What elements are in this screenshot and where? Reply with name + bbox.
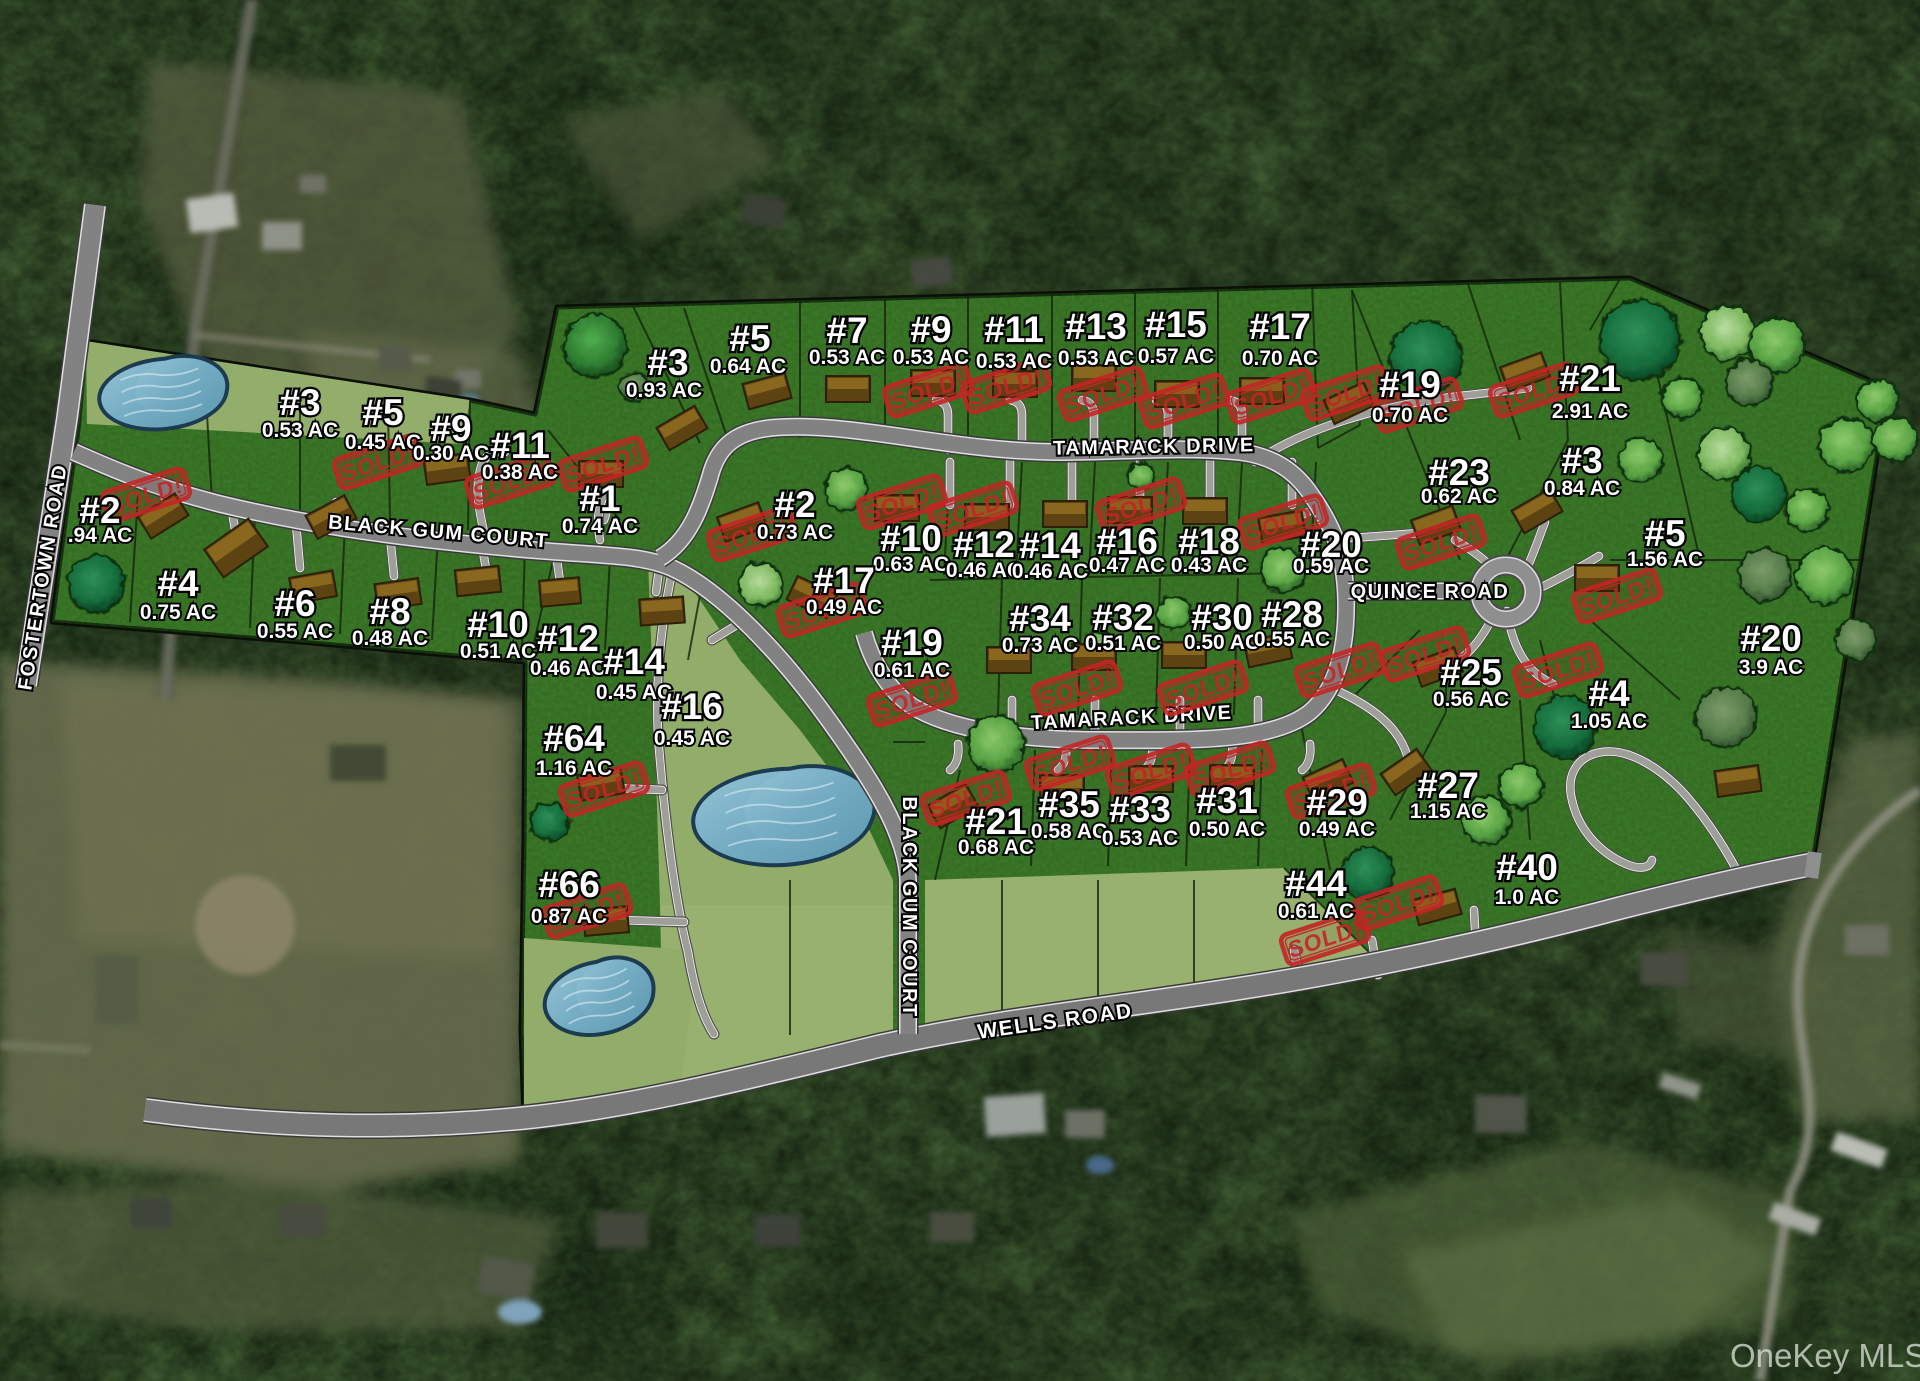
svg-text:0.50 AC: 0.50 AC	[1184, 631, 1260, 654]
svg-text:0.38 AC: 0.38 AC	[482, 461, 558, 484]
svg-text:#34: #34	[1009, 598, 1071, 639]
svg-text:0.43 AC: 0.43 AC	[1171, 554, 1247, 577]
svg-text:0.48 AC: 0.48 AC	[352, 627, 428, 650]
svg-text:.94 AC: .94 AC	[68, 524, 133, 547]
svg-text:#4: #4	[157, 563, 199, 604]
svg-text:#35: #35	[1038, 784, 1100, 825]
svg-text:0.63 AC: 0.63 AC	[873, 553, 949, 576]
svg-text:TAMARACK DRIVE: TAMARACK DRIVE	[1053, 434, 1255, 460]
svg-text:0.50 AC: 0.50 AC	[1189, 818, 1265, 841]
svg-text:1.16 AC: 1.16 AC	[536, 757, 612, 780]
svg-text:#64: #64	[543, 718, 605, 759]
svg-text:#12: #12	[537, 618, 599, 659]
svg-text:0.53 AC: 0.53 AC	[1102, 827, 1178, 850]
svg-text:0.73 AC: 0.73 AC	[1002, 634, 1078, 657]
svg-text:#1: #1	[579, 478, 620, 519]
svg-text:QUINCE ROAD: QUINCE ROAD	[1351, 581, 1510, 603]
svg-text:#21: #21	[1559, 358, 1621, 399]
svg-text:#9: #9	[910, 309, 951, 350]
svg-text:#40: #40	[1496, 847, 1558, 888]
svg-text:0.64 AC: 0.64 AC	[710, 355, 786, 378]
svg-text:2.91 AC: 2.91 AC	[1552, 400, 1628, 423]
svg-text:#7: #7	[826, 310, 867, 351]
svg-text:0.75 AC: 0.75 AC	[140, 601, 216, 624]
svg-text:0.45 AC: 0.45 AC	[345, 431, 421, 454]
svg-text:#11: #11	[984, 309, 1044, 350]
svg-text:0.46 AC: 0.46 AC	[946, 559, 1022, 582]
svg-text:0.30 AC: 0.30 AC	[413, 442, 489, 465]
svg-text:#5: #5	[729, 318, 770, 359]
svg-text:#6: #6	[274, 583, 315, 624]
svg-text:#11: #11	[490, 425, 550, 466]
svg-text:3.9 AC: 3.9 AC	[1739, 656, 1804, 679]
svg-text:#19: #19	[1379, 364, 1441, 405]
svg-text:0.49 AC: 0.49 AC	[1299, 818, 1375, 841]
svg-text:0.53 AC: 0.53 AC	[262, 419, 338, 442]
svg-text:#3: #3	[279, 382, 320, 423]
svg-text:#31: #31	[1196, 780, 1258, 821]
svg-text:#33: #33	[1109, 789, 1171, 830]
svg-text:0.47 AC: 0.47 AC	[1089, 554, 1165, 577]
svg-text:0.55 AC: 0.55 AC	[1254, 628, 1330, 651]
svg-text:#3: #3	[647, 342, 688, 383]
svg-text:0.87 AC: 0.87 AC	[531, 905, 607, 928]
svg-text:0.73 AC: 0.73 AC	[757, 521, 833, 544]
svg-text:0.55 AC: 0.55 AC	[257, 620, 333, 643]
svg-text:1.56 AC: 1.56 AC	[1627, 548, 1703, 571]
svg-text:#2: #2	[774, 484, 815, 525]
svg-text:0.46 AC: 0.46 AC	[1012, 560, 1088, 583]
svg-text:0.51 AC: 0.51 AC	[460, 640, 536, 663]
svg-text:0.53 AC: 0.53 AC	[809, 346, 885, 369]
svg-text:0.61 AC: 0.61 AC	[1278, 900, 1354, 923]
svg-text:0.58 AC: 0.58 AC	[1031, 820, 1107, 843]
svg-text:0.93 AC: 0.93 AC	[626, 379, 702, 402]
svg-text:#25: #25	[1440, 652, 1502, 693]
svg-text:0.61 AC: 0.61 AC	[874, 659, 950, 682]
svg-text:#44: #44	[1285, 863, 1347, 904]
svg-text:0.53 AC: 0.53 AC	[976, 350, 1052, 373]
svg-text:0.84 AC: 0.84 AC	[1544, 477, 1620, 500]
svg-text:#20: #20	[1740, 618, 1802, 659]
svg-text:OneKey MLS: OneKey MLS	[1730, 1337, 1920, 1374]
svg-text:#3: #3	[1561, 440, 1602, 481]
svg-text:0.59 AC: 0.59 AC	[1293, 555, 1369, 578]
svg-text:#17: #17	[813, 560, 875, 601]
svg-text:#8: #8	[369, 591, 410, 632]
svg-text:#29: #29	[1306, 782, 1368, 823]
svg-text:#4: #4	[1588, 673, 1630, 714]
svg-text:BLACK GUM COURT: BLACK GUM COURT	[898, 796, 920, 1017]
svg-text:#16: #16	[661, 686, 723, 727]
svg-text:1.05 AC: 1.05 AC	[1571, 710, 1647, 733]
svg-text:#17: #17	[1249, 306, 1311, 347]
svg-text:0.56 AC: 0.56 AC	[1433, 688, 1509, 711]
svg-text:#5: #5	[362, 392, 403, 433]
svg-text:0.46 AC: 0.46 AC	[530, 657, 606, 680]
svg-text:0.70 AC: 0.70 AC	[1372, 404, 1448, 427]
svg-text:0.74 AC: 0.74 AC	[562, 515, 638, 538]
svg-text:0.68 AC: 0.68 AC	[958, 836, 1034, 859]
svg-text:0.53 AC: 0.53 AC	[893, 346, 969, 369]
svg-text:0.57 AC: 0.57 AC	[1138, 345, 1214, 368]
svg-text:0.53 AC: 0.53 AC	[1058, 347, 1134, 370]
svg-text:#15: #15	[1145, 304, 1207, 345]
svg-text:1.15 AC: 1.15 AC	[1410, 800, 1486, 823]
svg-text:#14: #14	[603, 641, 665, 682]
svg-text:#19: #19	[881, 622, 943, 663]
svg-text:0.45 AC: 0.45 AC	[654, 727, 730, 750]
svg-text:1.0 AC: 1.0 AC	[1495, 886, 1560, 909]
svg-text:0.49 AC: 0.49 AC	[806, 596, 882, 619]
svg-text:#13: #13	[1065, 306, 1127, 347]
svg-text:0.51 AC: 0.51 AC	[1085, 632, 1161, 655]
svg-text:0.62 AC: 0.62 AC	[1421, 485, 1497, 508]
svg-text:0.70 AC: 0.70 AC	[1242, 347, 1318, 370]
svg-text:#10: #10	[467, 604, 529, 645]
svg-text:#66: #66	[538, 864, 600, 905]
